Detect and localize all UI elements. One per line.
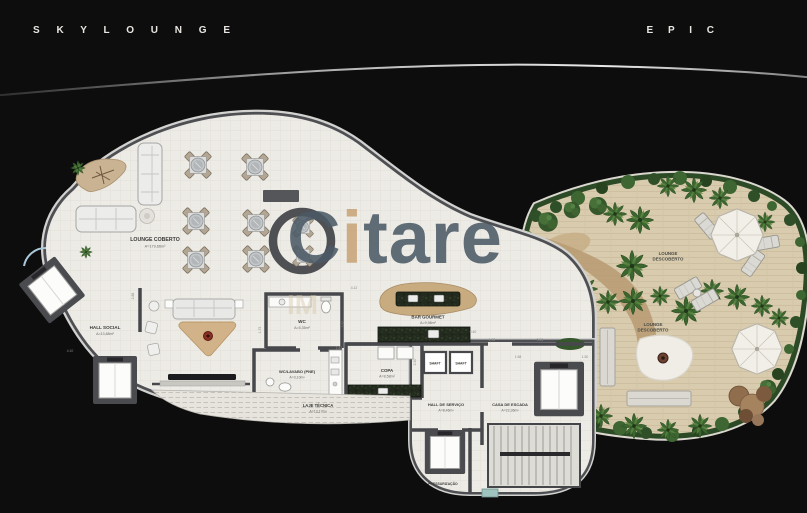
umbrella-icon (711, 209, 763, 261)
tv-console (168, 374, 236, 380)
hall-servico-label: HALL DE SERVIÇO (428, 402, 464, 407)
pressurization-elevator (425, 430, 465, 474)
appliance (378, 347, 394, 359)
side-table (693, 289, 701, 297)
round-chair (144, 213, 150, 219)
lounge-descoberto-lower-2: DESCOBERTO (638, 328, 669, 333)
dim: 3.50 (341, 321, 345, 328)
watermark-tare: tare (363, 196, 503, 279)
sink-icon (266, 378, 274, 386)
vent-box (482, 489, 498, 497)
lounge-descoberto-upper-1: LOUNGE (659, 251, 678, 256)
staircase (488, 424, 580, 487)
floorplan-page: LOUNGE COBERTO A=179,66m² HALL SOCIAL A=… (0, 0, 807, 508)
watermark-sub: IM (287, 289, 318, 320)
sink-icon (428, 330, 439, 338)
tree-icon (589, 197, 607, 215)
armchair (145, 321, 158, 334)
umbrella-icon (732, 324, 782, 374)
sink-icon (378, 388, 388, 394)
stair-handrail (500, 452, 570, 456)
lounge-coberto-label: LOUNGE COBERTO (130, 237, 179, 243)
tree-icon (538, 212, 558, 232)
hall-social-area: A=13,88m² (96, 332, 114, 336)
wc-pne-area: A=3,10m² (289, 376, 305, 380)
granite-bar-top (396, 292, 460, 306)
granite-island (378, 327, 470, 342)
toilet-icon (322, 301, 331, 313)
dim: 1.58 (515, 355, 522, 359)
casa-escada-label: CASA DE ESCADA (492, 402, 528, 407)
dim: 1.50 (582, 355, 589, 359)
hall-social-label: HALL SOCIAL (90, 325, 121, 330)
lounge-coberto-area: A=179,66m² (145, 245, 167, 249)
side-table (165, 300, 173, 308)
lounge-descoberto-upper-2: DESCOBERTO (653, 257, 684, 262)
dim: 0.40 (470, 330, 477, 334)
dim: 5.26 (537, 338, 544, 342)
toilet-icon (279, 383, 291, 391)
plant-icon (80, 246, 93, 259)
dim: 1.38 (489, 338, 496, 342)
sink-icon (279, 299, 285, 305)
dim: 2.30 (413, 359, 417, 366)
lounge-descoberto-lower-1: LOUNGE (644, 322, 663, 327)
watermark-text: Citare (287, 196, 503, 279)
dim: 1.43 (336, 346, 343, 350)
wc-area: A=5,35m² (294, 326, 310, 330)
sink-icon (408, 295, 418, 302)
dim: 4.12 (351, 286, 358, 290)
plant-icon (71, 161, 86, 176)
page-title-right: E P I C (647, 25, 721, 36)
bar-gourmet-label: BAR GOURMET (411, 315, 444, 320)
media-bench (160, 381, 245, 386)
service-elevator (534, 362, 584, 417)
fire-pit-center (207, 335, 210, 338)
sofa (173, 299, 235, 319)
floorplan-canvas: LOUNGE COBERTO A=179,66m² HALL SOCIAL A=… (0, 0, 807, 508)
dim: 4.10 (67, 349, 74, 353)
dim: 1.73 (258, 327, 262, 334)
tree-icon (564, 202, 581, 219)
wc-pne-label: WC/LAVABO (PNE) (279, 369, 316, 374)
shaft-right-label: SHAFT (455, 362, 467, 366)
casa-escada-area: A=22,36m² (501, 409, 519, 413)
social-elevator (93, 356, 137, 404)
round-table (149, 301, 159, 311)
armchair (147, 343, 160, 356)
copa-label: COPA (381, 368, 394, 373)
appliance (397, 347, 413, 359)
shaft-left-label: SHAFT (429, 362, 441, 366)
watermark-i: i (342, 196, 364, 279)
side-table (235, 300, 243, 308)
galley-counter (329, 350, 342, 395)
pressurizacao-label: PRESSURIZAÇÃO (428, 481, 458, 486)
page-title-left: S K Y L O U N G E (33, 25, 237, 36)
sink-icon (434, 295, 444, 302)
laje-tecnica-label: LAJE TÉCNICA (303, 403, 333, 408)
copa-area: A=8,58m² (379, 375, 395, 379)
dim: 2.88 (131, 293, 135, 300)
bar-gourmet-area: A=9,98m² (420, 321, 436, 325)
fire-pit-center (661, 356, 665, 360)
watermark-c: C (287, 196, 341, 279)
laje-tecnica-area: A=13,17m² (309, 410, 327, 414)
hall-servico-area: A=8,46m² (438, 409, 454, 413)
